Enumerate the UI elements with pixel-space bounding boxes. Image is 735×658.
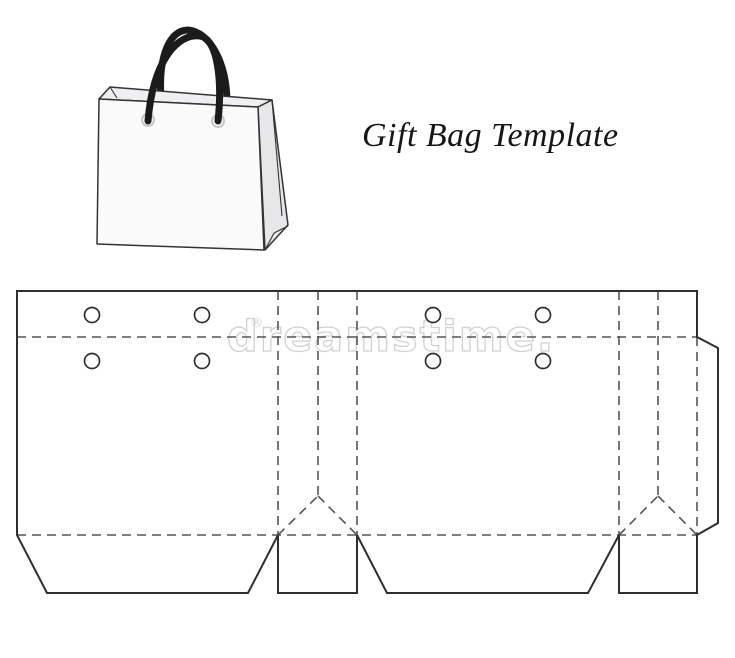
handle-hole xyxy=(85,354,100,369)
fold-line xyxy=(318,496,357,535)
handle-hole xyxy=(85,308,100,323)
handle-hole xyxy=(426,354,441,369)
handle-hole xyxy=(195,308,210,323)
watermark-registered-icon: ® xyxy=(250,316,263,331)
handle-hole xyxy=(195,354,210,369)
handle-hole xyxy=(426,308,441,323)
fold-line xyxy=(278,496,318,535)
fold-line xyxy=(619,496,658,535)
bag-front-face xyxy=(97,99,264,250)
gift-bag-template-scene: dreamstime. ® xyxy=(0,0,735,658)
die-cut-template-diagram xyxy=(17,291,718,593)
bag-illustration xyxy=(97,30,288,250)
fold-line xyxy=(658,496,697,535)
handle-hole xyxy=(536,308,551,323)
handle-hole xyxy=(536,354,551,369)
